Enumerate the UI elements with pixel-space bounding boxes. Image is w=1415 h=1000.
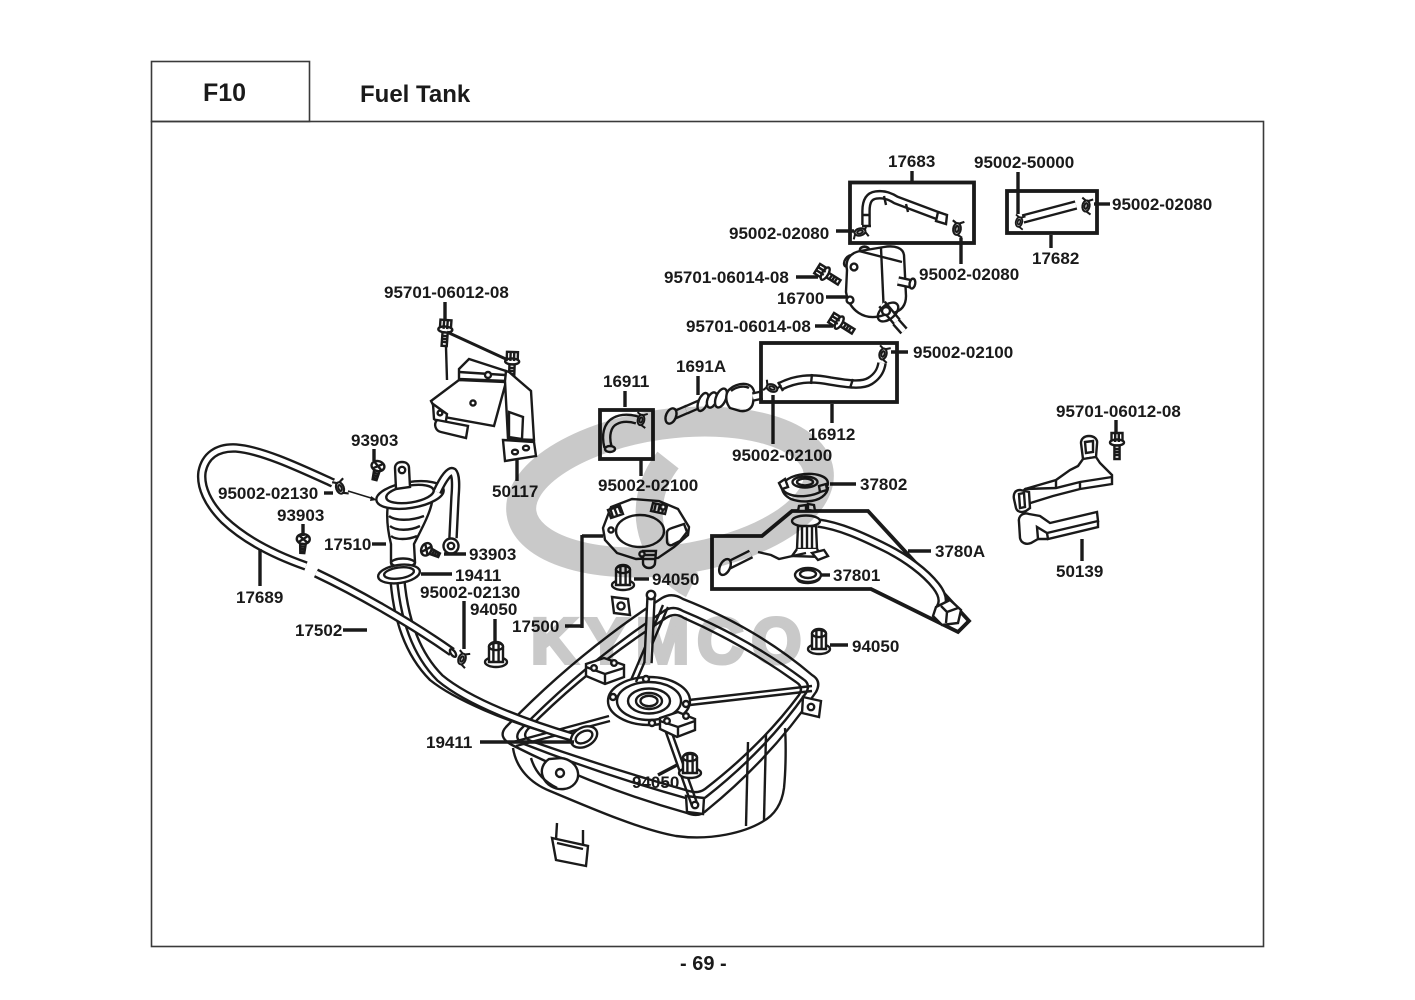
svg-text:95002-02080: 95002-02080 <box>919 265 1019 284</box>
svg-text:93903: 93903 <box>277 506 324 525</box>
svg-text:Fuel Tank: Fuel Tank <box>360 81 471 108</box>
svg-text:95701-06014-08: 95701-06014-08 <box>664 268 789 287</box>
svg-text:17502: 17502 <box>295 621 342 640</box>
svg-text:95002-50000: 95002-50000 <box>974 153 1074 172</box>
svg-text:19411: 19411 <box>426 733 472 752</box>
svg-text:50139: 50139 <box>1056 562 1103 581</box>
svg-text:95002-02100: 95002-02100 <box>913 343 1013 362</box>
svg-text:17689: 17689 <box>236 588 283 607</box>
svg-text:93903: 93903 <box>469 545 516 564</box>
svg-text:93903: 93903 <box>351 431 398 450</box>
svg-text:94050: 94050 <box>632 773 679 792</box>
svg-text:F10: F10 <box>203 79 246 107</box>
svg-text:95701-06012-08: 95701-06012-08 <box>384 283 509 302</box>
svg-text:17683: 17683 <box>888 152 935 171</box>
svg-text:16700: 16700 <box>777 289 824 308</box>
svg-text:17510: 17510 <box>324 535 371 554</box>
svg-text:94050: 94050 <box>852 637 899 656</box>
svg-text:1691A: 1691A <box>676 357 726 376</box>
svg-text:3780A: 3780A <box>935 542 985 561</box>
svg-text:16911: 16911 <box>603 372 649 391</box>
svg-text:95002-02130: 95002-02130 <box>218 484 318 503</box>
svg-text:- 69 -: - 69 - <box>680 953 727 975</box>
svg-text:KYMCO: KYMCO <box>531 605 809 677</box>
svg-text:95002-02080: 95002-02080 <box>1112 195 1212 214</box>
svg-text:37801: 37801 <box>833 566 880 585</box>
svg-text:95701-06014-08: 95701-06014-08 <box>686 317 811 336</box>
svg-text:17682: 17682 <box>1032 249 1079 268</box>
svg-text:94050: 94050 <box>470 600 517 619</box>
svg-text:95701-06012-08: 95701-06012-08 <box>1056 402 1181 421</box>
svg-text:37802: 37802 <box>860 475 907 494</box>
svg-text:95002-02080: 95002-02080 <box>729 224 829 243</box>
